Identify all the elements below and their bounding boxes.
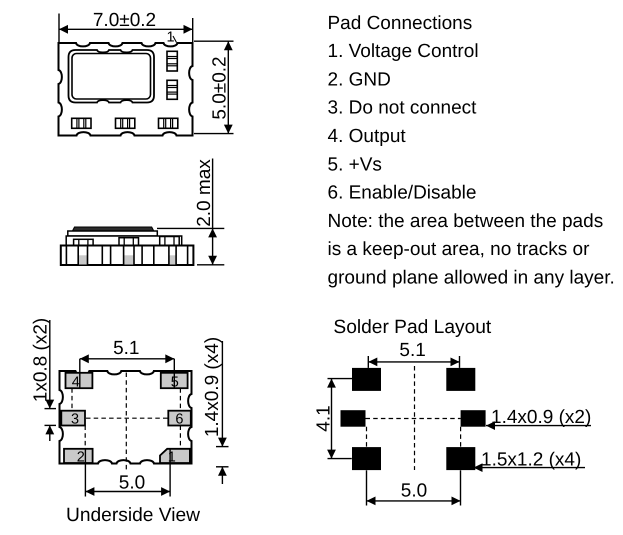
- svg-text:4. Output: 4. Output: [328, 126, 407, 147]
- svg-text:ground plane allowed in any la: ground plane allowed in any layer.: [328, 268, 615, 289]
- svg-text:6: 6: [175, 412, 183, 428]
- svg-text:5.0±0.2: 5.0±0.2: [210, 56, 231, 119]
- svg-text:5.1: 5.1: [113, 338, 139, 359]
- svg-text:Note: the area between the pad: Note: the area between the pads: [328, 211, 604, 232]
- svg-text:5.0: 5.0: [401, 480, 427, 501]
- svg-text:1.4x0.9 (x2): 1.4x0.9 (x2): [491, 407, 591, 428]
- svg-text:2.0 max: 2.0 max: [194, 159, 215, 227]
- svg-text:7.0±0.2: 7.0±0.2: [93, 10, 156, 31]
- svg-text:5. +Vs: 5. +Vs: [328, 154, 382, 175]
- svg-text:1x0.8 (x2): 1x0.8 (x2): [31, 318, 52, 402]
- svg-text:1. Voltage Control: 1. Voltage Control: [328, 41, 479, 62]
- svg-text:3. Do not connect: 3. Do not connect: [328, 98, 478, 119]
- svg-text:5.1: 5.1: [399, 340, 425, 361]
- svg-text:3: 3: [71, 412, 79, 428]
- svg-text:1: 1: [168, 449, 176, 465]
- svg-text:Solder Pad Layout: Solder Pad Layout: [333, 317, 492, 338]
- svg-text:is a keep-out area, no tracks: is a keep-out area, no tracks or: [328, 239, 591, 260]
- svg-text:4: 4: [72, 375, 80, 391]
- svg-text:Pad Connections: Pad Connections: [328, 13, 473, 34]
- svg-text:2. GND: 2. GND: [328, 69, 391, 90]
- svg-text:1.4x0.9 (x4): 1.4x0.9 (x4): [202, 337, 223, 437]
- svg-text:5.0: 5.0: [119, 473, 145, 494]
- svg-text:4.1: 4.1: [314, 405, 335, 431]
- svg-text:2: 2: [77, 449, 85, 465]
- svg-text:Underside View: Underside View: [66, 505, 200, 526]
- svg-text:6. Enable/Disable: 6. Enable/Disable: [328, 183, 477, 204]
